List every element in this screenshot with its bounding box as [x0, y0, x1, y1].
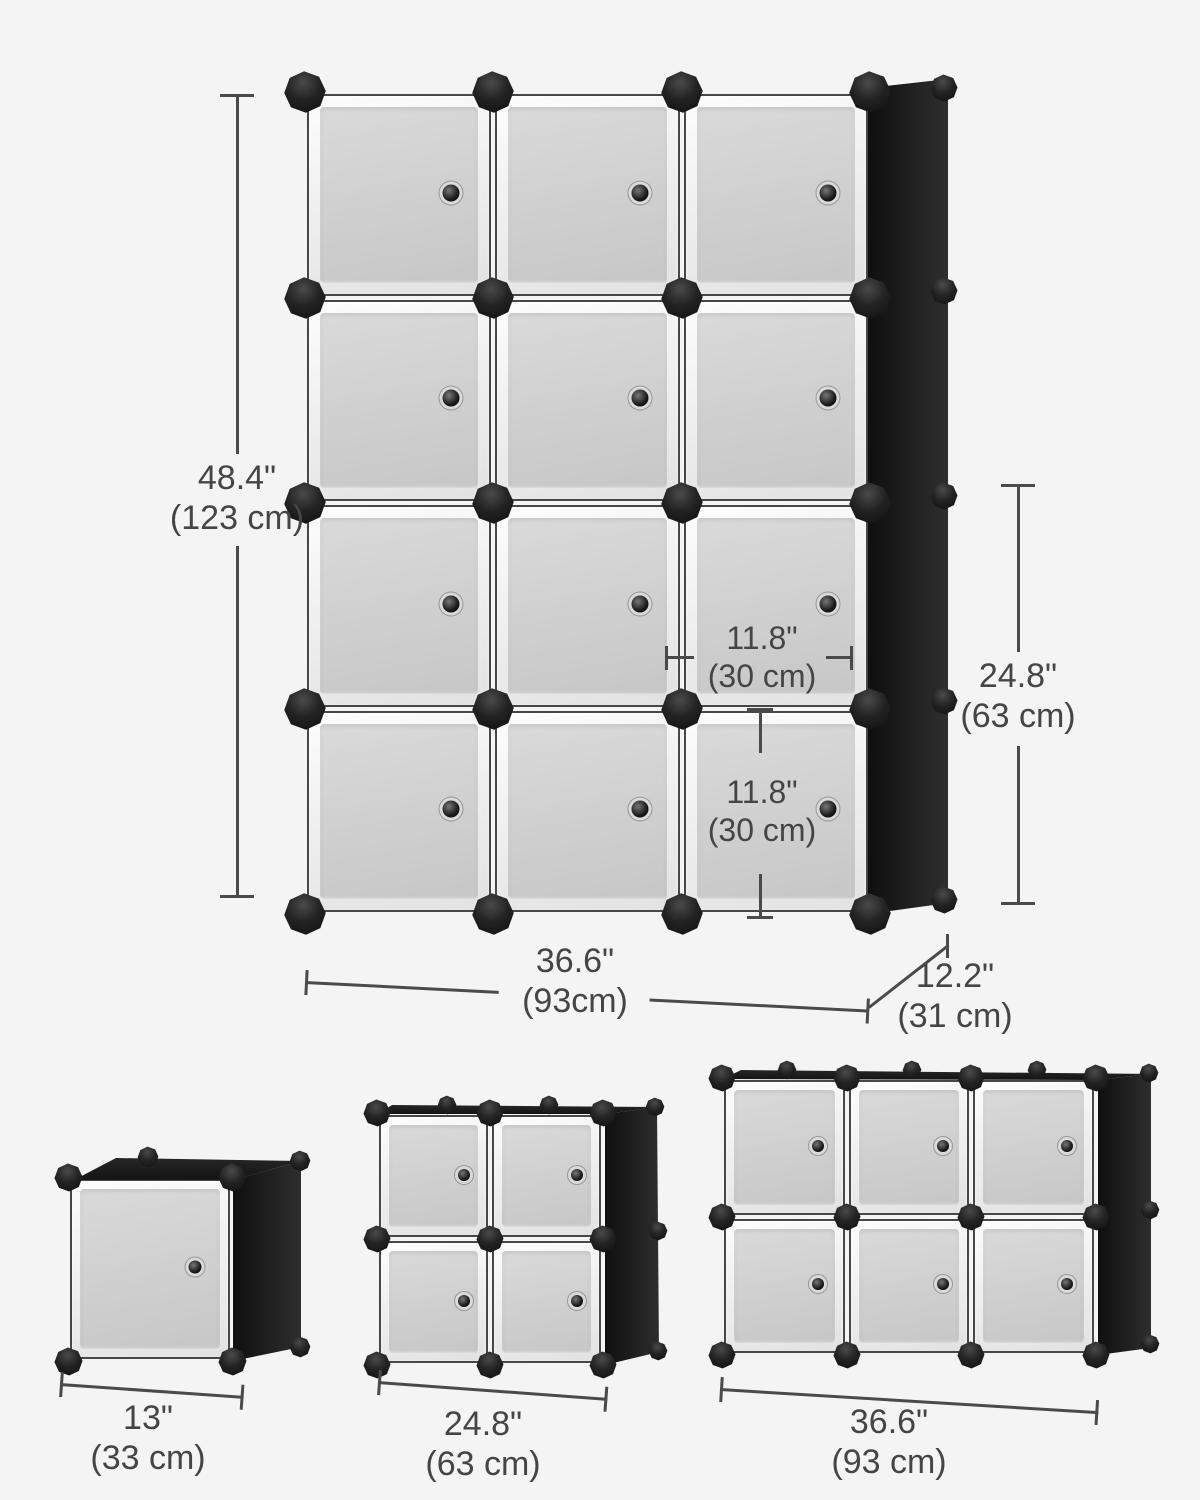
four-cube-inches: 24.8" — [403, 1404, 563, 1444]
door-knob — [820, 595, 837, 612]
main-height-label: 48.4" (123 cm) — [147, 458, 327, 538]
dimension-cap — [850, 646, 853, 670]
dimension-cap — [1095, 1400, 1100, 1425]
six-cube-metric: (93 cm) — [789, 1442, 989, 1482]
cube-width-inches: 11.8" — [692, 620, 832, 658]
corner-connector — [1138, 1332, 1161, 1355]
main-depth-metric: (31 cm) — [893, 996, 1017, 1036]
corner-connector — [646, 1219, 669, 1242]
main-width-inches: 36.6" — [505, 941, 645, 981]
cube-width-metric: (30 cm) — [692, 658, 832, 696]
corner-connector — [287, 1334, 313, 1360]
dimension-line — [60, 1383, 244, 1399]
dimension-line — [759, 874, 762, 918]
cube-door — [381, 1243, 486, 1361]
cube-door — [686, 302, 866, 500]
cube-door — [497, 507, 677, 705]
cube-door — [726, 1082, 843, 1213]
cube-door — [497, 96, 677, 294]
door-knob — [443, 390, 460, 407]
dimension-cap — [220, 895, 254, 898]
four-cube-metric: (63 cm) — [403, 1444, 563, 1484]
cube-door — [381, 1117, 486, 1235]
four-cube-width-label: 24.8" (63 cm) — [403, 1404, 563, 1484]
door-knob — [189, 1261, 202, 1274]
dimension-line — [307, 981, 499, 994]
door-knob — [571, 1295, 583, 1307]
corner-connector — [643, 1095, 666, 1118]
single-cube-width-label: 13" (33 cm) — [68, 1398, 228, 1478]
stack-height-label: 24.8" (63 cm) — [928, 656, 1108, 736]
door-knob — [443, 184, 460, 201]
dimension-line — [1017, 746, 1020, 904]
four-cube-width-line — [378, 1381, 608, 1401]
corner-connector — [927, 883, 960, 916]
six-cube-inches: 36.6" — [789, 1402, 989, 1442]
dimension-line — [236, 96, 239, 454]
single-cube-front — [68, 1177, 232, 1361]
cube-door — [309, 507, 489, 705]
cube-height-metric: (30 cm) — [692, 812, 832, 850]
dimension-cap — [946, 934, 949, 958]
main-depth-label: 12.2" (31 cm) — [893, 956, 1017, 1036]
cube-door — [72, 1181, 228, 1357]
cube-height-inches: 11.8" — [692, 774, 832, 812]
cube-door — [309, 713, 489, 911]
main-height-inches: 48.4" — [147, 458, 327, 498]
main-width-label: 36.6" (93cm) — [505, 941, 645, 1021]
six-cube-front — [722, 1078, 1096, 1355]
corner-connector — [646, 1339, 669, 1362]
single-cube-inches: 13" — [68, 1398, 228, 1438]
corner-connector — [927, 274, 960, 307]
door-knob — [631, 184, 648, 201]
cube-door — [851, 1082, 968, 1213]
door-knob — [820, 390, 837, 407]
corner-connector — [135, 1144, 161, 1170]
six-cube-width-label: 36.6" (93 cm) — [789, 1402, 989, 1482]
door-knob — [812, 1278, 824, 1290]
dimension-cap — [1001, 902, 1035, 905]
door-knob — [458, 1295, 470, 1307]
dimension-line — [649, 998, 867, 1012]
cube-door — [494, 1243, 599, 1361]
main-depth-inches: 12.2" — [893, 956, 1017, 996]
cube-door — [309, 302, 489, 500]
corner-connector — [1138, 1198, 1161, 1221]
dimension-cap — [240, 1385, 245, 1410]
door-knob — [1061, 1140, 1073, 1152]
cube-width-label: 11.8" (30 cm) — [692, 620, 832, 696]
dimension-line — [1017, 486, 1020, 652]
door-knob — [937, 1278, 949, 1290]
door-knob — [458, 1169, 470, 1181]
cube-door — [494, 1117, 599, 1235]
cube-door — [497, 713, 677, 911]
single-cube-width-line — [60, 1383, 244, 1399]
corner-connector — [1137, 1061, 1160, 1084]
door-knob — [820, 184, 837, 201]
dimension-line — [759, 711, 762, 753]
cube-door — [726, 1221, 843, 1352]
dimension-line — [378, 1381, 608, 1401]
cube-door — [497, 302, 677, 500]
cube-door — [975, 1221, 1092, 1352]
door-knob — [631, 390, 648, 407]
door-knob — [1061, 1278, 1073, 1290]
single-cube-metric: (33 cm) — [68, 1438, 228, 1478]
product-dimension-diagram: 48.4" (123 cm) 24.8" (63 cm) 36.6" (93cm… — [0, 0, 1200, 1500]
dimension-cap — [866, 998, 870, 1023]
corner-connector — [927, 479, 960, 512]
door-knob — [443, 801, 460, 818]
corner-connector — [287, 1148, 313, 1174]
main-width-metric: (93cm) — [505, 981, 645, 1021]
door-knob — [571, 1169, 583, 1181]
stack-height-metric: (63 cm) — [928, 696, 1108, 736]
cube-height-label: 11.8" (30 cm) — [692, 774, 832, 850]
four-cube-front — [377, 1113, 603, 1365]
door-knob — [443, 595, 460, 612]
cube-door — [975, 1082, 1092, 1213]
single-cube-side-panel — [233, 1161, 301, 1361]
door-knob — [812, 1140, 824, 1152]
dimension-line — [236, 546, 239, 897]
cube-door — [686, 96, 866, 294]
door-knob — [631, 595, 648, 612]
stack-height-inches: 24.8" — [928, 656, 1108, 696]
dimension-cap — [603, 1387, 608, 1412]
door-knob — [631, 801, 648, 818]
cube-door — [851, 1221, 968, 1352]
main-height-metric: (123 cm) — [147, 498, 327, 538]
cube-door — [309, 96, 489, 294]
dimension-line — [668, 656, 694, 659]
corner-connector — [927, 71, 960, 104]
dimension-cap — [747, 916, 773, 919]
door-knob — [937, 1140, 949, 1152]
